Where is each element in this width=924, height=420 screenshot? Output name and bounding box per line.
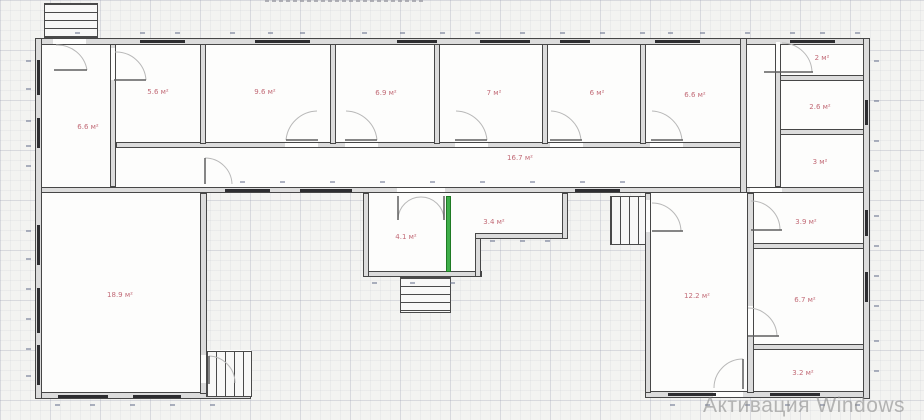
door-opening: [111, 48, 115, 80]
room-mid-2-area-label: 3.4 м²: [483, 218, 504, 226]
dimension-mark: [26, 288, 31, 290]
dimension-mark: [380, 181, 385, 183]
wall[interactable]: [747, 193, 754, 393]
dimension-mark: [545, 240, 550, 242]
dimension-mark: [874, 245, 879, 247]
dimension-mark: [490, 240, 495, 242]
door-opening: [750, 188, 782, 192]
dimension-mark: [400, 32, 405, 34]
room-right-4-area-label: 3.9 м²: [795, 218, 816, 226]
room-right-large-area-label: 12.2 м²: [684, 292, 710, 300]
window-segment[interactable]: [790, 40, 835, 43]
dimension-mark: [175, 32, 180, 34]
dimension-mark: [372, 282, 377, 284]
wall[interactable]: [775, 129, 864, 135]
dimension-mark: [230, 32, 235, 34]
dimension-mark: [26, 348, 31, 350]
room-large-left-area-label: 18.9 м²: [107, 291, 133, 299]
dimension-mark: [855, 32, 860, 34]
dimension-mark: [450, 282, 455, 284]
dimension-mark: [26, 88, 31, 90]
dimension-mark: [130, 404, 135, 406]
window-segment[interactable]: [560, 40, 590, 43]
window-segment[interactable]: [480, 40, 530, 43]
dimension-mark: [874, 170, 879, 172]
dimension-mark: [26, 120, 31, 122]
window-segment[interactable]: [865, 210, 868, 236]
dimension-mark: [26, 165, 31, 167]
wall[interactable]: [200, 44, 206, 144]
dimension-mark: [26, 60, 31, 62]
dimension-mark: [75, 32, 80, 34]
dimension-mark: [700, 32, 705, 34]
dimension-mark: [874, 60, 879, 62]
dimension-mark: [26, 145, 31, 147]
door-opening: [776, 42, 780, 72]
door-opening: [397, 188, 445, 192]
door-opening: [550, 143, 583, 147]
room-top-left-area-label: 6.6 м²: [77, 123, 98, 131]
dimension-mark: [300, 32, 305, 34]
dimension-mark: [874, 305, 879, 307]
door-opening: [53, 39, 86, 44]
corridor-area-label: 16.7 м²: [507, 154, 533, 162]
dimension-mark: [268, 32, 273, 34]
dimension-mark: [240, 181, 245, 183]
dimension-mark: [874, 215, 879, 217]
dimension-mark: [580, 181, 585, 183]
room-mid-1-area-label: 4.1 м²: [395, 233, 416, 241]
room-floor[interactable]: [747, 38, 870, 193]
window-segment[interactable]: [37, 60, 40, 95]
door-opening: [748, 306, 753, 337]
window-segment[interactable]: [58, 395, 108, 398]
dimension-mark: [55, 404, 60, 406]
dimension-mark: [745, 32, 750, 34]
window-segment[interactable]: [37, 225, 40, 265]
room-top-6-area-label: 6.6 м²: [684, 91, 705, 99]
dimension-mark: [560, 32, 565, 34]
dimension-mark: [874, 275, 879, 277]
window-segment[interactable]: [575, 189, 620, 192]
wall[interactable]: [475, 238, 481, 277]
window-segment[interactable]: [37, 288, 40, 333]
dimension-mark: [620, 181, 625, 183]
room-right-6-area-label: 3.2 м²: [792, 369, 813, 377]
dimension-mark: [600, 32, 605, 34]
dimension-mark: [210, 404, 215, 406]
room-right-5-area-label: 6.7 м²: [794, 296, 815, 304]
highlighted-wall[interactable]: [446, 196, 451, 272]
window-segment[interactable]: [255, 40, 310, 43]
window-segment[interactable]: [865, 272, 868, 302]
window-segment[interactable]: [300, 189, 352, 192]
dimension-mark: [90, 404, 95, 406]
wall[interactable]: [434, 44, 440, 144]
dimension-mark: [874, 140, 879, 142]
room-floor[interactable]: [645, 193, 870, 398]
window-segment[interactable]: [225, 189, 270, 192]
room-top-1-area-label: 5.6 м²: [147, 88, 168, 96]
room-top-5-area-label: 6 м²: [590, 89, 605, 97]
dimension-mark: [280, 181, 285, 183]
staircase-left-room[interactable]: [206, 351, 252, 397]
door-opening: [285, 143, 318, 147]
dimension-mark: [874, 340, 879, 342]
room-right-top-area-label: 2 м²: [815, 54, 830, 62]
room-right-2-area-label: 2.6 м²: [809, 103, 830, 111]
dimension-mark: [26, 318, 31, 320]
wall[interactable]: [740, 38, 747, 193]
room-right-3-area-label: 3 м²: [813, 158, 828, 166]
wall[interactable]: [747, 243, 864, 249]
floor-plan-canvas[interactable]: Активация Windows 6.6 м²5.6 м²9.6 м²6.9 …: [0, 0, 924, 420]
wall[interactable]: [640, 44, 646, 144]
staircase-south[interactable]: [400, 277, 451, 313]
staircase-east[interactable]: [610, 196, 646, 245]
dimension-mark: [640, 32, 645, 34]
dimension-mark: [140, 32, 145, 34]
dimension-mark: [874, 370, 879, 372]
door-opening: [345, 143, 378, 147]
dimension-mark: [362, 32, 367, 34]
dimension-mark: [410, 282, 415, 284]
room-floor[interactable]: [363, 193, 568, 238]
dimension-mark: [530, 181, 535, 183]
dimension-mark: [874, 100, 879, 102]
dimension-mark: [26, 230, 31, 232]
window-segment[interactable]: [133, 395, 181, 398]
dimension-mark: [475, 32, 480, 34]
room-top-4-area-label: 7 м²: [487, 89, 502, 97]
dimension-mark: [520, 240, 525, 242]
dimension-mark: [520, 32, 525, 34]
wall[interactable]: [747, 344, 864, 350]
door-opening: [650, 143, 683, 147]
window-segment[interactable]: [865, 100, 868, 125]
dimension-mark: [820, 32, 825, 34]
dimension-mark: [170, 404, 175, 406]
staircase-top-left[interactable]: [44, 3, 98, 38]
dimension-mark: [330, 181, 335, 183]
door-opening: [646, 200, 650, 232]
dimension-mark: [480, 181, 485, 183]
dimension-mark: [430, 181, 435, 183]
room-floor[interactable]: [35, 38, 772, 193]
wall[interactable]: [775, 75, 864, 81]
dimension-mark: [26, 258, 31, 260]
dimension-mark: [790, 32, 795, 34]
room-top-3-area-label: 6.9 м²: [375, 89, 396, 97]
wall[interactable]: [542, 44, 548, 144]
wall[interactable]: [330, 44, 336, 144]
window-segment[interactable]: [37, 118, 40, 148]
window-segment[interactable]: [397, 40, 437, 43]
room-top-2-area-label: 9.6 м²: [254, 88, 275, 96]
door-opening: [455, 143, 488, 147]
dimension-mark: [670, 404, 675, 406]
dimension-mark: [26, 375, 31, 377]
dimension-mark: [668, 32, 673, 34]
wall[interactable]: [562, 193, 568, 239]
window-segment[interactable]: [655, 40, 700, 43]
wall[interactable]: [363, 193, 369, 277]
dimension-mark: [440, 32, 445, 34]
wall[interactable]: [475, 233, 568, 239]
window-segment[interactable]: [140, 40, 185, 43]
windows-activation-watermark: Активация Windows: [703, 394, 905, 418]
window-segment[interactable]: [37, 345, 40, 385]
